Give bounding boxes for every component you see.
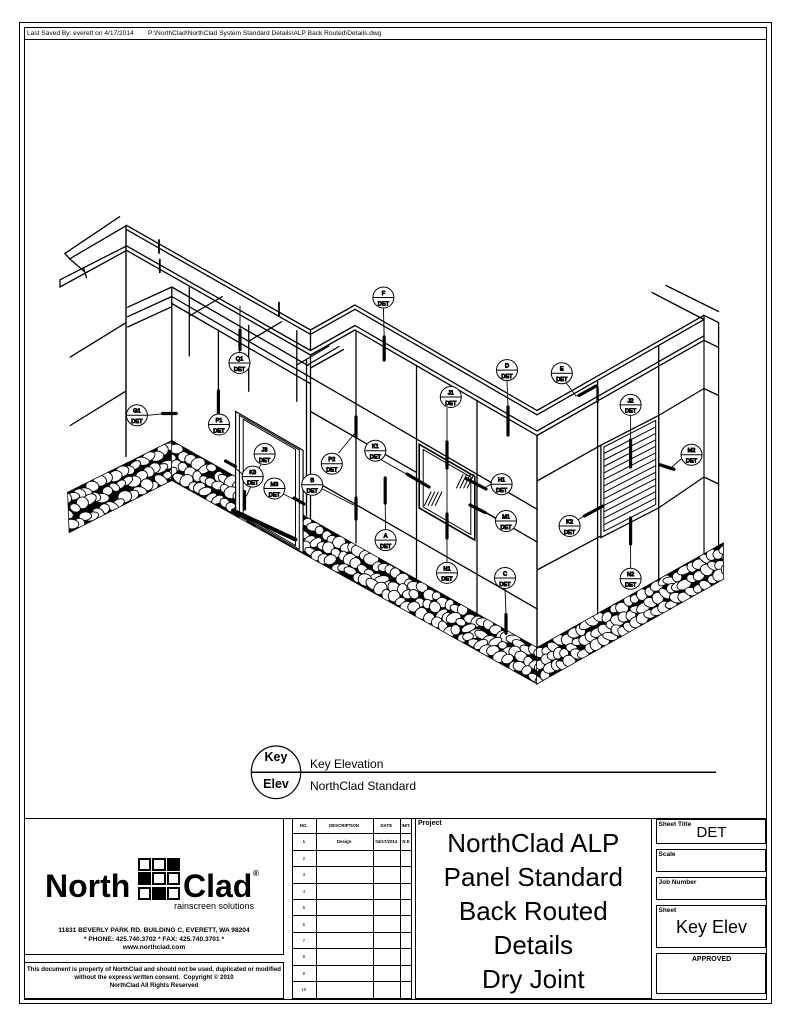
svg-text:DET: DET: [269, 492, 281, 498]
svg-text:K2: K2: [566, 519, 573, 525]
svg-text:DET: DET: [625, 409, 637, 415]
svg-text:DET: DET: [307, 489, 319, 495]
svg-text:K3: K3: [249, 470, 256, 476]
svg-text:M1: M1: [502, 514, 510, 520]
svg-text:N1: N1: [443, 566, 450, 572]
svg-text:DET: DET: [499, 582, 511, 588]
svg-text:G1: G1: [133, 409, 140, 415]
svg-text:DET: DET: [445, 401, 457, 407]
svg-text:DET: DET: [501, 374, 513, 380]
svg-text:DET: DET: [380, 544, 392, 550]
svg-text:C: C: [503, 571, 507, 577]
svg-text:K1: K1: [372, 444, 379, 450]
svg-text:DET: DET: [326, 468, 338, 474]
svg-text:DET: DET: [247, 480, 259, 486]
svg-text:M3: M3: [271, 482, 279, 488]
svg-text:DET: DET: [686, 459, 698, 465]
svg-text:F: F: [382, 291, 386, 297]
svg-text:DET: DET: [500, 525, 512, 531]
svg-text:N2: N2: [627, 572, 634, 578]
svg-text:M2: M2: [688, 448, 696, 454]
svg-text:DET: DET: [441, 577, 453, 583]
svg-text:DET: DET: [564, 530, 576, 536]
svg-text:DET: DET: [378, 301, 390, 307]
svg-text:E: E: [560, 367, 564, 373]
svg-text:B: B: [310, 478, 314, 484]
svg-text:DET: DET: [496, 488, 508, 494]
svg-text:DET: DET: [131, 419, 143, 425]
svg-text:J2: J2: [628, 398, 634, 404]
svg-text:DET: DET: [625, 583, 637, 589]
svg-text:P1: P1: [216, 418, 223, 424]
svg-text:A: A: [384, 534, 388, 540]
svg-text:J1: J1: [448, 390, 454, 396]
svg-text:DET: DET: [370, 455, 382, 461]
svg-text:DET: DET: [259, 458, 271, 464]
svg-text:D: D: [505, 364, 509, 370]
svg-text:H1: H1: [498, 478, 505, 484]
svg-text:DET: DET: [234, 367, 246, 373]
svg-text:DET: DET: [556, 377, 568, 383]
svg-text:DET: DET: [213, 428, 225, 434]
svg-text:P2: P2: [328, 457, 335, 463]
svg-text:J3: J3: [262, 447, 268, 453]
svg-text:Q1: Q1: [236, 356, 243, 362]
